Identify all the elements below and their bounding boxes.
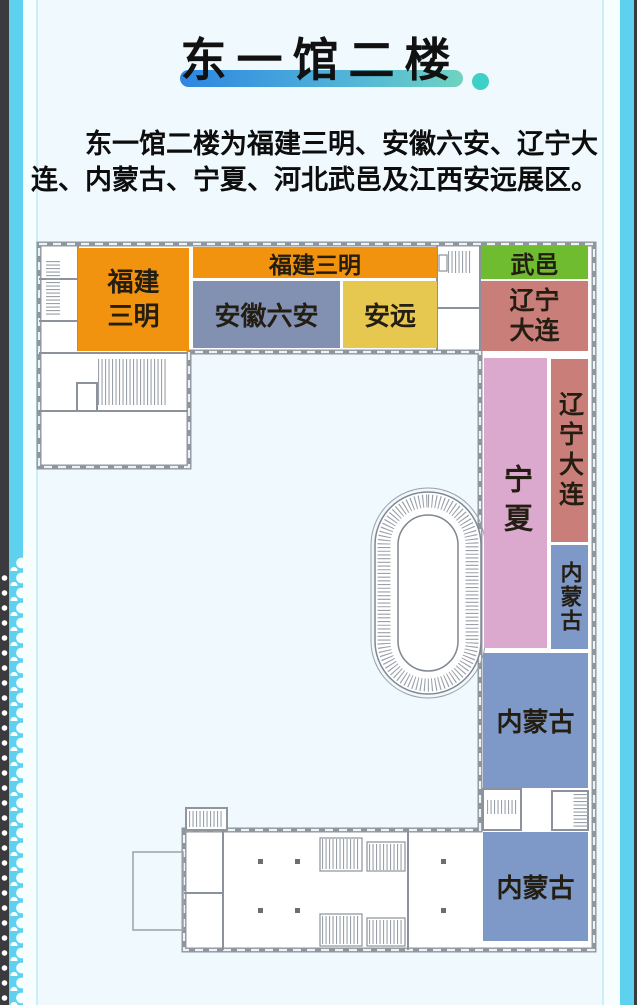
poster-page: { "page": { "background": "#f0f9fd", "ed…: [0, 0, 637, 1005]
right-white-stripe: [604, 0, 620, 1005]
region-neimenggu-south: 内蒙古: [483, 832, 588, 941]
region-ningxia: 宁夏: [484, 358, 547, 648]
region-liaoning-dalian-north: 辽宁 大连: [481, 281, 588, 351]
region-label-line: 福建: [107, 266, 159, 300]
intro-paragraph: 东一馆二楼为福建三明、安徽六安、辽宁大连、内蒙古、宁夏、河北武邑及江西安远展区。: [31, 126, 605, 198]
region-anyuan: 安远: [343, 281, 437, 348]
region-label-line: 大连: [509, 316, 559, 346]
header: 东一馆二楼: [38, 33, 603, 87]
region-wuyi: 武邑: [481, 246, 588, 279]
region-neimenggu-mid: 内蒙古: [483, 653, 588, 788]
floorplan: 福建 三明 福建三明 安徽六安 安远 武邑 辽宁 大连 宁夏 辽宁大连 内蒙古 …: [36, 241, 602, 955]
region-neimenggu-east: 内蒙古: [551, 545, 588, 649]
terrace-outline: [133, 852, 183, 930]
left-dark-dots-pattern: [0, 570, 9, 1005]
region-liaoning-dalian-east: 辽宁大连: [551, 359, 588, 542]
south-stair-bump: [186, 808, 227, 830]
region-fujian-sanming-hall: 福建 三明: [78, 248, 189, 351]
page-title: 东一馆二楼: [38, 33, 603, 87]
region-anhui-luan: 安徽六安: [193, 281, 340, 348]
right-cyan-stripe: [620, 0, 634, 1005]
region-label-line: 三明: [107, 300, 159, 334]
left-cyan-dots-pattern: [9, 556, 23, 1005]
oval-ramp: [371, 488, 485, 698]
region-label-line: 辽宁: [509, 286, 559, 316]
region-fujian-sanming-strip: 福建三明: [193, 247, 437, 278]
